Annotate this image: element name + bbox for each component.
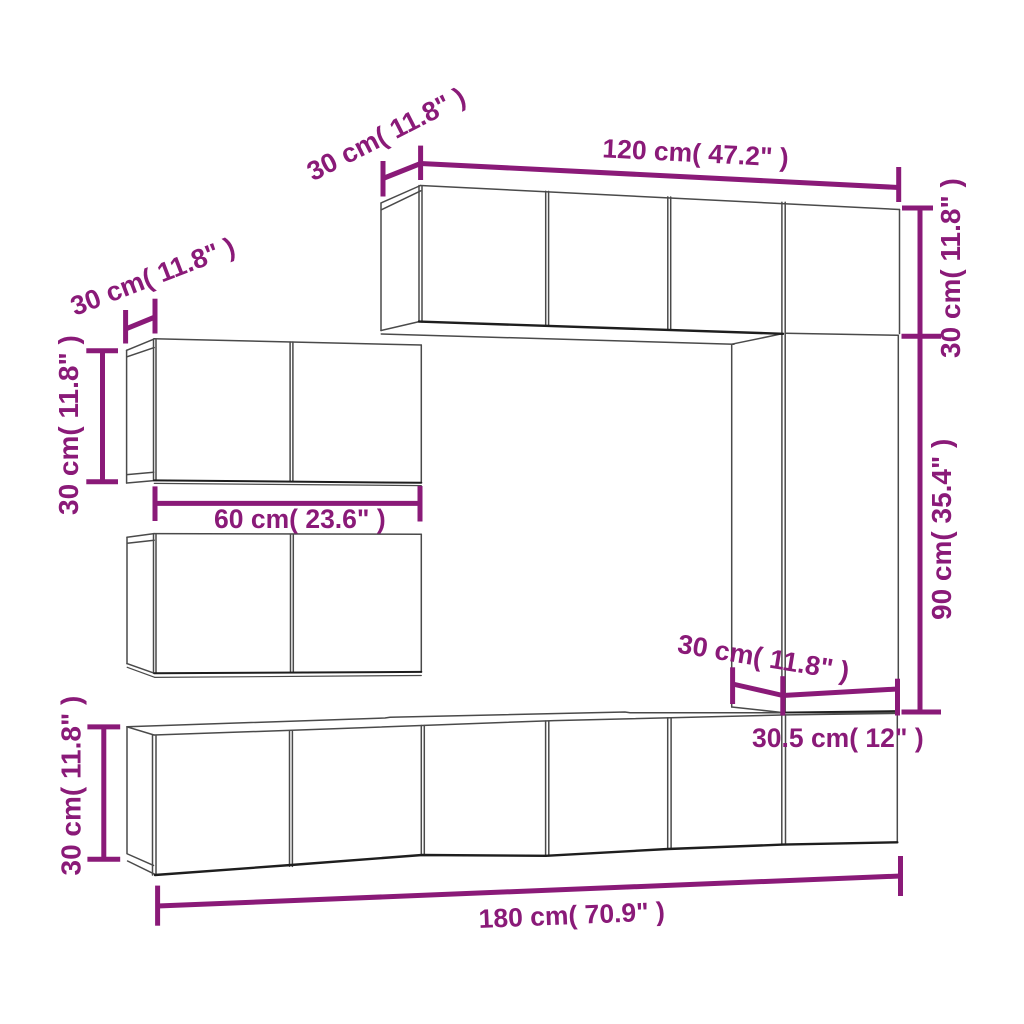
svg-text:30.5 cm( 12" ): 30.5 cm( 12" ) xyxy=(752,723,924,753)
svg-text:60 cm( 23.6" ): 60 cm( 23.6" ) xyxy=(214,504,386,534)
svg-text:30 cm( 11.8" ): 30 cm( 11.8" ) xyxy=(56,696,87,876)
svg-text:90 cm( 35.4" ): 90 cm( 35.4" ) xyxy=(926,439,957,620)
svg-text:30 cm( 11.8" ): 30 cm( 11.8" ) xyxy=(935,178,966,358)
svg-text:30 cm( 11.8" ): 30 cm( 11.8" ) xyxy=(53,335,84,515)
